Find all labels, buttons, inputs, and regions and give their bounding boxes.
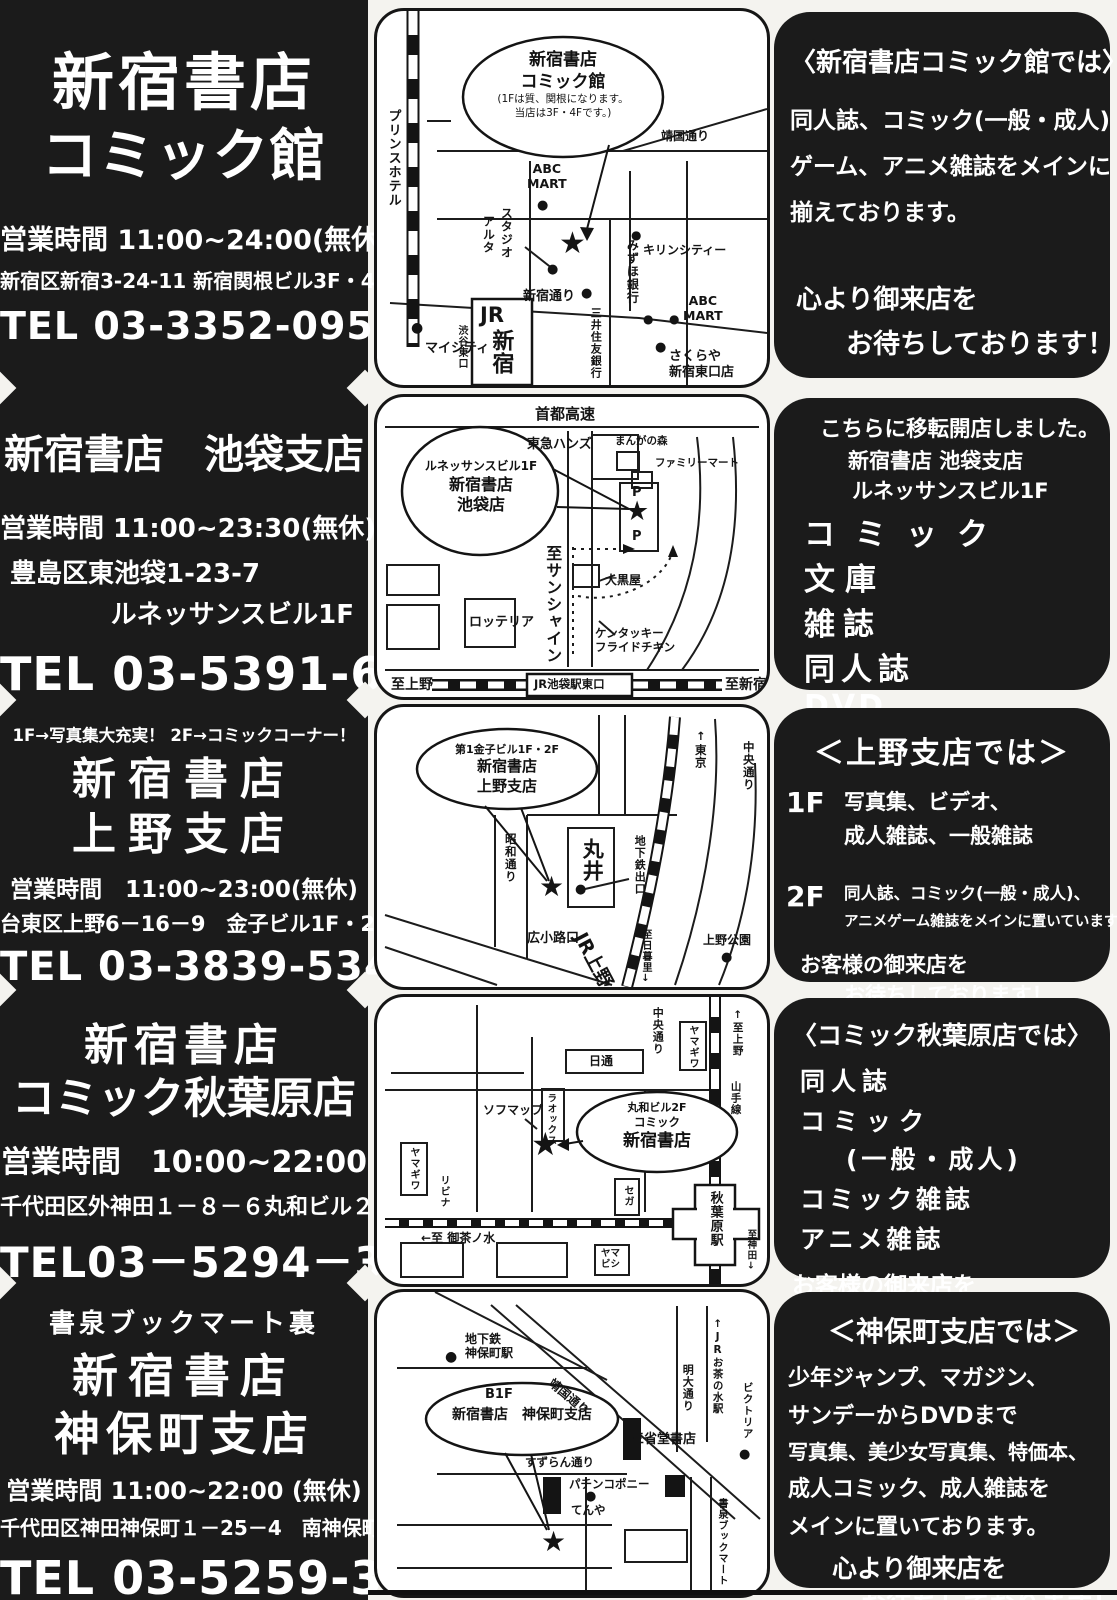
map-label-kfc: ケンタッキー フライドチキン xyxy=(595,627,675,655)
map-label-daikokuya: 大黒屋 xyxy=(605,573,641,587)
panel-heading: ＜神保町支店では＞ xyxy=(788,1310,1096,1350)
store-name-line: コミック秋葉原店 xyxy=(0,1073,368,1127)
store-flyer-page: 新宿書店 コミック館 営業時間 11:00~24:00(無休) 新宿区新宿3-2… xyxy=(0,0,1117,1600)
panel-line: こちらに移転開店しました。 xyxy=(786,412,1098,443)
map-label-subway-jimbocho: 地下鉄 神保町駅 xyxy=(465,1332,513,1361)
store-star-icon: ★ xyxy=(559,229,586,259)
map-label-familymart: ファミリーマート xyxy=(655,457,739,470)
panel-closing: お客様の御来店を xyxy=(786,949,1098,979)
map-label-to-shinjuku: 至新宿 xyxy=(725,677,767,694)
info-panel-ueno: ＜上野支店では＞ 1F 写真集、ビデオ、 成人雑誌、一般雑誌 2F 同人誌、コミ… xyxy=(774,708,1110,982)
store-name-line: 上野支店 xyxy=(0,807,368,862)
store-name-line: 新宿書店 xyxy=(0,1018,368,1073)
map-label-yamabishi: ヤマ ビシ xyxy=(601,1248,620,1271)
map-label-meidai-dori: 明大通り xyxy=(681,1364,694,1412)
floor-label: 1F xyxy=(786,786,844,819)
map-label-jr-shinjuku: 新宿 xyxy=(487,329,513,375)
floor-desc: 同人誌、コミック(一般・成人)、 アニメゲーム雑誌をメインに置いています。 xyxy=(844,880,1117,931)
map-ikebukuro: ルネッサンスビル1F 新宿書店 池袋店 首都高速 東急ハンズ まんがの森 ファミ… xyxy=(374,394,770,700)
map-label-marui: 丸井 xyxy=(579,838,604,882)
balloon-line: 丸和ビル2F xyxy=(581,1101,733,1115)
store-info-akihabara: 新宿書店 コミック秋葉原店 営業時間 10:00~22:00 千代田区外神田１－… xyxy=(0,990,368,1283)
panel-line: 成人雑誌、一般雑誌 xyxy=(844,820,1033,850)
store-star-icon: ★ xyxy=(541,1528,566,1556)
location-dot-icon: ● xyxy=(643,313,653,325)
balloon-line: 上野支店 xyxy=(417,777,597,797)
store-address: 台東区上野6－16－9 金子ビル1F・2F xyxy=(0,908,368,938)
store-star-icon: ★ xyxy=(539,873,564,901)
store-note: 書泉ブックマート裏 xyxy=(0,1303,368,1340)
panel-line: アニメ雑誌 xyxy=(788,1220,1096,1256)
map-label-to-ueno: ↑至上野 xyxy=(731,1009,744,1057)
store-info-ueno: 1F→写真集大充実！ 2F→コミックコーナー！ 新宿書店 上野支店 営業時間 1… xyxy=(0,700,368,990)
map-label-chuo-dori: 中央通り xyxy=(741,741,755,791)
info-panel-ikebukuro: こちらに移転開店しました。 新宿書店 池袋支店 ルネッサンスビル1F コミック … xyxy=(774,398,1110,690)
location-dot-icon: ● xyxy=(411,321,423,335)
store-phone: TEL 03-3352-0952 xyxy=(0,304,368,348)
map-label-mitsui-sumitomo-bank: 三井住友銀行 xyxy=(589,307,602,379)
location-dot-icon: ● xyxy=(581,287,592,300)
map-label-suzuran-dori: すずらん通り xyxy=(525,1456,594,1470)
store-star-icon: ★ xyxy=(531,1128,560,1160)
info-panel-jimbocho: ＜神保町支店では＞ 少年ジャンプ、マガジン、 サンデーからDVDまで 写真集、美… xyxy=(774,1292,1110,1588)
map-label-tokyu-hands: 東急ハンズ xyxy=(527,437,592,453)
panel-item: 雑誌 xyxy=(786,599,1098,644)
panel-line: サンデーからDVDまで xyxy=(788,1398,1096,1430)
balloon-line: コミック xyxy=(581,1115,733,1130)
map-label-yasukuni-dori: 靖国通り xyxy=(661,129,709,143)
map-label-mizuho-bank: みずほ銀行 xyxy=(625,239,639,304)
map-label-livina: リビナ xyxy=(437,1175,449,1208)
panel-line: 同人誌、コミック(一般・成人) xyxy=(790,101,1094,135)
map-label-to-ochanomizu: ←至 御茶ノ水 xyxy=(421,1231,495,1245)
location-dot-icon: ● xyxy=(445,1350,457,1364)
floor-row-2f: 2F 同人誌、コミック(一般・成人)、 アニメゲーム雑誌をメインに置いています。 xyxy=(786,880,1098,931)
map-label-sofmap: ソフマップ xyxy=(483,1103,543,1117)
map-label-jr-ikebukuro-east-exit: JR池袋駅東口 xyxy=(534,678,605,692)
store-info-ikebukuro: 新宿書店 池袋支店 営業時間 11:00~23:30(無休) 豊島区東池袋1-2… xyxy=(0,388,368,700)
panel-line: アニメゲーム雑誌をメインに置いています。 xyxy=(844,910,1117,931)
store-address: 新宿区新宿3-24-11 新宿関根ビル3F・4F xyxy=(0,265,368,294)
location-dot-icon: ● xyxy=(669,313,679,325)
store-hours: 営業時間 11:00~24:00(無休) xyxy=(0,218,368,257)
store-name-line: 新宿書店 xyxy=(0,1348,368,1406)
map-label-kirin-city: キリンシティー xyxy=(643,243,726,257)
balloon-line: 新宿書店 xyxy=(417,757,597,777)
map-label-pachinko-pony: パチンコポニー xyxy=(569,1478,650,1492)
map-label-manga-no-mori: まんがの森 xyxy=(615,435,668,448)
balloon-line: (1Fは質、関根になります。 xyxy=(463,93,663,107)
store-address: 豊島区東池袋1-23-7 xyxy=(0,553,368,590)
map-label-to-ueno: 至上野 xyxy=(391,677,433,694)
panel-heading: 〈コミック秋葉原店では〉 xyxy=(788,1016,1096,1052)
map-label-chuo-dori: 中央通り xyxy=(651,1007,664,1055)
page-bottom-rule xyxy=(368,1590,1117,1595)
location-dot-icon: ● xyxy=(575,883,586,896)
store-address: 千代田区外神田１－８－６丸和ビル２F xyxy=(0,1189,368,1221)
balloon-line: 新宿書店 xyxy=(581,1130,733,1152)
map-drawing xyxy=(377,1292,767,1595)
map-label-shuto-expressway: 首都高速 xyxy=(535,405,595,423)
balloon-line: 第1金子ビル1F・2F xyxy=(417,743,597,757)
panel-line: 成人コミック、成人雑誌を xyxy=(788,1471,1096,1503)
panel-line: 写真集、美少女写真集、特価本、 xyxy=(788,1436,1096,1465)
balloon-line: 新宿書店 xyxy=(463,49,663,71)
panel-line: 同人誌、コミック(一般・成人)、 xyxy=(844,880,1117,904)
store-name-line: 新宿書店 池袋支店 xyxy=(0,430,368,480)
map-label-sega: セガ xyxy=(621,1185,633,1207)
map-label-to-tokyo: ↑東京 xyxy=(693,729,707,769)
map-ueno: 第1金子ビル1F・2F 新宿書店 上野支店 ↑東京 中央通り 昭和通り 丸井 地… xyxy=(374,704,770,990)
location-dot-icon: ● xyxy=(547,263,558,276)
panel-line: 揃えております。 xyxy=(790,193,1094,227)
balloon-line: コミック館 xyxy=(463,71,663,93)
floor-label: 2F xyxy=(786,880,844,913)
location-dot-icon: ● xyxy=(655,341,666,354)
panel-line: 写真集、ビデオ、 xyxy=(844,786,1033,816)
panel-closing: 心より御来店を xyxy=(788,1549,1096,1585)
store-name-line: 新宿書店 xyxy=(0,752,368,807)
map-label-ueno-park: 上野公園 xyxy=(703,933,751,947)
store-hours: 営業時間 11:00~23:00(無休) xyxy=(0,870,368,904)
panel-item: 文庫 xyxy=(786,554,1098,599)
map-label-akihabara-station: 秋葉原駅 xyxy=(707,1191,723,1247)
panel-line: ゲーム、アニメ雑誌をメインに xyxy=(790,147,1094,181)
store-hours: 営業時間 10:00~22:00 xyxy=(0,1137,368,1181)
panel-item: 同人誌 xyxy=(786,644,1098,689)
location-dot-icon: ● xyxy=(721,951,732,964)
map-akihabara: 丸和ビル2F コミック 新宿書店 日通 中央通り ヤマギワ ↑至上野 山手線 ソ… xyxy=(374,994,770,1287)
map-label-yamanote-line: 山手線 xyxy=(729,1081,742,1116)
map-label-shinjuku-dori: 新宿通り xyxy=(523,289,575,305)
map-shinjuku-comic-kan: 新宿書店 コミック館 (1Fは質、関根になります。 当店は3F・4Fです。) プ… xyxy=(374,8,770,388)
map-label-nittsu: 日通 xyxy=(589,1054,613,1068)
map-label-jr-ochanomizu: ↑JRお茶の水駅 xyxy=(711,1318,724,1415)
map-label-prince-hotel: プリンスホテル xyxy=(385,109,401,207)
map-label-yamagiwa-left: ヤマギワ xyxy=(407,1147,419,1191)
map-balloon-text: ルネッサンスビル1F 新宿書店 池袋店 xyxy=(405,459,557,516)
map-label-shosen-bookmart: 書泉ブックマート xyxy=(715,1498,727,1586)
floor-row-1f: 1F 写真集、ビデオ、 成人雑誌、一般雑誌 xyxy=(786,786,1098,850)
store-phone: TEL 03-5259-3525 xyxy=(0,1551,368,1600)
store-address: ルネッサンスビル1F xyxy=(0,594,368,631)
store-star-icon: ★ xyxy=(625,498,649,525)
panel-line: ルネッサンスビル1F xyxy=(786,475,1098,505)
panel-line: コミック xyxy=(788,1102,1096,1138)
balloon-line-b1f: B1F xyxy=(485,1387,513,1403)
balloon-line: 池袋店 xyxy=(405,495,557,516)
panel-heading: ＜上野支店では＞ xyxy=(786,728,1098,772)
map-label-alta: アルタ xyxy=(481,215,495,254)
balloon-line: 当店は3F・4Fです。) xyxy=(463,107,663,121)
map-label-jr: JR xyxy=(480,303,504,328)
map-label-showa-dori: 昭和通り xyxy=(503,833,517,883)
floor-desc: 写真集、ビデオ、 成人雑誌、一般雑誌 xyxy=(844,786,1033,850)
map-label-parking-2: P xyxy=(632,529,642,545)
location-dot-icon: ● xyxy=(537,199,548,212)
store-name-line: 新宿書店 xyxy=(0,44,368,122)
store-info-comic-kan: 新宿書店 コミック館 営業時間 11:00~24:00(無休) 新宿区新宿3-2… xyxy=(0,18,368,388)
balloon-line: 新宿書店 xyxy=(405,475,557,496)
map-label-sakuraya: さくらや 新宿東口店 xyxy=(669,349,734,380)
map-label-yamagiwa-right: ヤマギワ xyxy=(686,1025,698,1069)
map-label-abc-mart-1: ABC MART xyxy=(527,161,567,191)
map-balloon-text: 新宿書店 コミック館 (1Fは質、関根になります。 当店は3F・4Fです。) xyxy=(463,49,663,120)
store-note: 1F→写真集大充実！ 2F→コミックコーナー！ xyxy=(0,722,368,746)
store-phone: TEL03－5294－3222 xyxy=(0,1229,368,1290)
map-label-lotteria: ロッテリア xyxy=(469,615,534,631)
store-hours: 営業時間 11:00~23:30(無休) xyxy=(0,508,368,545)
map-balloon-text: 第1金子ビル1F・2F 新宿書店 上野支店 xyxy=(417,743,597,796)
map-label-to-kanda: 至神田↓ xyxy=(745,1229,756,1273)
panel-line: メインに置いております。 xyxy=(788,1509,1096,1541)
panel-closing: 心より御来店を xyxy=(790,279,1094,316)
location-dot-icon: ● xyxy=(739,1448,750,1461)
store-info-jimbocho: 書泉ブックマート裏 新宿書店 神保町支店 営業時間 11:00~22:00 (無… xyxy=(0,1283,368,1600)
store-name-line: 神保町支店 xyxy=(0,1406,368,1464)
info-panel-comic-kan: 〈新宿書店コミック館では〉 同人誌、コミック(一般・成人) ゲーム、アニメ雑誌を… xyxy=(774,12,1110,378)
panel-item: コミック xyxy=(786,509,1098,554)
map-balloon-text: 丸和ビル2F コミック 新宿書店 xyxy=(581,1101,733,1152)
map-label-victoria: ビクトリア xyxy=(741,1382,754,1440)
panel-line: コミック雑誌 xyxy=(788,1180,1096,1216)
map-label-tenya: てんや xyxy=(571,1504,606,1518)
store-phone: TEL 03-3839-5340 xyxy=(0,944,368,990)
panel-line: 少年ジャンプ、マガジン、 xyxy=(788,1360,1096,1392)
location-dot-icon: ● xyxy=(631,229,641,241)
panel-closing: お待ちしております！ xyxy=(790,322,1094,361)
store-phone: TEL 03-5391-6231 xyxy=(0,647,368,701)
info-panel-akihabara: 〈コミック秋葉原店では〉 同人誌 コミック (一般・成人) コミック雑誌 アニメ… xyxy=(774,998,1110,1278)
map-label-shibuya-east-exit: 渋谷東口 xyxy=(455,325,467,369)
map-label-to-nippori: 至日暮里↓ xyxy=(639,929,651,985)
store-address: 千代田区神田神保町１－25－4 南神保町ビルB1F xyxy=(0,1512,368,1541)
map-label-abc-mart-2: ABC MART xyxy=(683,293,723,323)
balloon-line: ルネッサンスビル1F xyxy=(405,459,557,475)
map-jimbocho: B1F 新宿書店 神保町支店 地下鉄 神保町駅 ● 靖国通り 明大通り ↑JRお… xyxy=(374,1289,770,1598)
store-hours: 営業時間 11:00~22:00 (無休) xyxy=(0,1471,368,1506)
map-label-to-sunshine: 至サンシャイン xyxy=(543,545,562,664)
panel-line: 新宿書店 池袋支店 xyxy=(786,445,1098,475)
location-dot-icon: ● xyxy=(585,1490,596,1503)
map-label-sanseido: 三省堂書店 xyxy=(631,1432,696,1448)
panel-heading: 〈新宿書店コミック館では〉 xyxy=(790,42,1094,79)
panel-line: 同人誌 xyxy=(788,1062,1096,1098)
map-label-subway-exit: 地下鉄出口 xyxy=(633,835,646,895)
panel-line: (一般・成人) xyxy=(788,1140,1096,1176)
store-name-line: コミック館 xyxy=(0,122,368,192)
map-label-studio: スタジオ xyxy=(499,207,513,259)
